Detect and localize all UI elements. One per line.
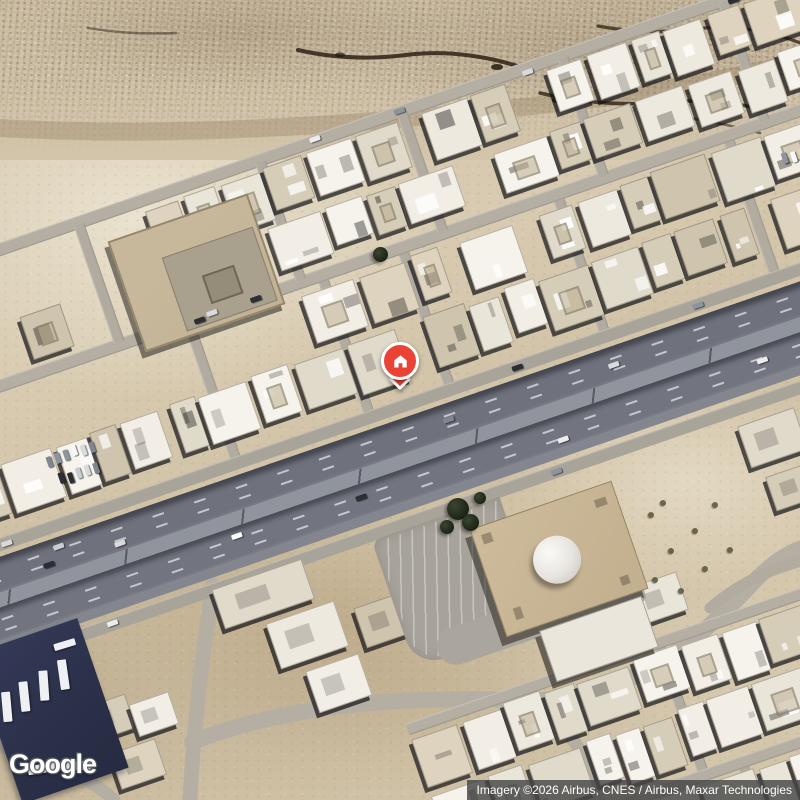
tree-icon [474,492,486,504]
building [576,666,642,726]
mosque-dome [527,529,588,590]
tree-icon [373,247,388,262]
building [19,303,75,360]
tree-icon [440,520,454,534]
building [411,724,473,788]
building [770,184,800,249]
building [493,136,560,194]
building [305,653,372,713]
building [635,85,697,142]
building [250,364,303,424]
tree-icon [462,514,479,531]
home-icon [391,352,410,371]
building [129,691,180,737]
building [688,71,745,128]
building [546,59,595,112]
building [301,279,369,344]
building [765,462,800,512]
city-grid [0,0,800,800]
building [737,407,800,468]
building [325,196,375,246]
satellite-map[interactable]: Google Imagery ©2026 Airbus, CNES / Airb… [0,0,800,800]
google-watermark[interactable]: Google [9,749,96,780]
pin-circle [381,342,419,380]
imagery-attribution: Imagery ©2026 Airbus, CNES / Airbus, Max… [467,780,800,800]
building [398,166,466,225]
building [459,225,528,290]
